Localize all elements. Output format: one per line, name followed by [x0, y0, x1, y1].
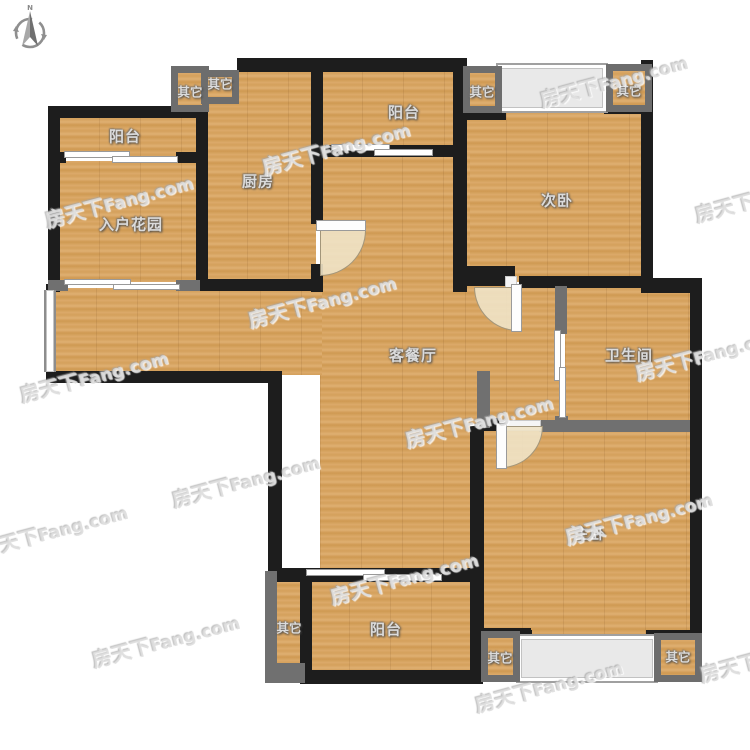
room-label-other: 其它 [469, 82, 494, 101]
watermark: 房天下Fang.com [88, 606, 243, 673]
room-label-bedroom-second: 次卧 [541, 190, 573, 211]
watermark: 房天下Fang.com [696, 621, 750, 688]
room-label-other: 其它 [177, 82, 202, 101]
room-label-other: 其它 [665, 647, 690, 666]
svg-text:N: N [27, 4, 33, 12]
room-label-living-dining: 客餐厅 [389, 345, 437, 366]
wall-segment [196, 104, 208, 290]
sliding-door [64, 151, 178, 163]
watermark: 房天下Fang.com [691, 161, 750, 228]
room-label-other: 其它 [276, 618, 301, 637]
wall-segment [519, 276, 648, 288]
wall-segment [265, 663, 305, 683]
room-label-other: 其它 [487, 648, 512, 667]
wall-segment [555, 420, 690, 432]
wall-segment [555, 286, 567, 334]
door-leaf-bedroom-second [511, 284, 522, 332]
wall-segment [48, 106, 60, 292]
sliding-door [64, 279, 180, 290]
room-label-balcony-bottom: 阳台 [370, 619, 402, 640]
watermark: 房天下Fang.com [168, 446, 323, 513]
sliding-door [554, 330, 566, 418]
room-label-balcony-top-left: 阳台 [109, 126, 141, 147]
wall-segment [300, 670, 483, 684]
watermark: 房天下Fang.com [0, 496, 131, 563]
wall-segment [176, 152, 208, 163]
window [44, 290, 56, 372]
compass-icon: N [6, 2, 54, 56]
wall-segment [690, 283, 702, 643]
wall-segment [300, 570, 312, 674]
door-leaf-bedroom-master [496, 423, 507, 469]
floorplan: 阳台 入户花园 厨房 阳台 次卧 客餐厅 卫生间 主卧 阳台 其它 其它 其它 … [0, 0, 750, 750]
door-leaf-kitchen [316, 220, 366, 231]
room-label-other: 其它 [207, 74, 232, 93]
wall-segment [237, 58, 467, 72]
